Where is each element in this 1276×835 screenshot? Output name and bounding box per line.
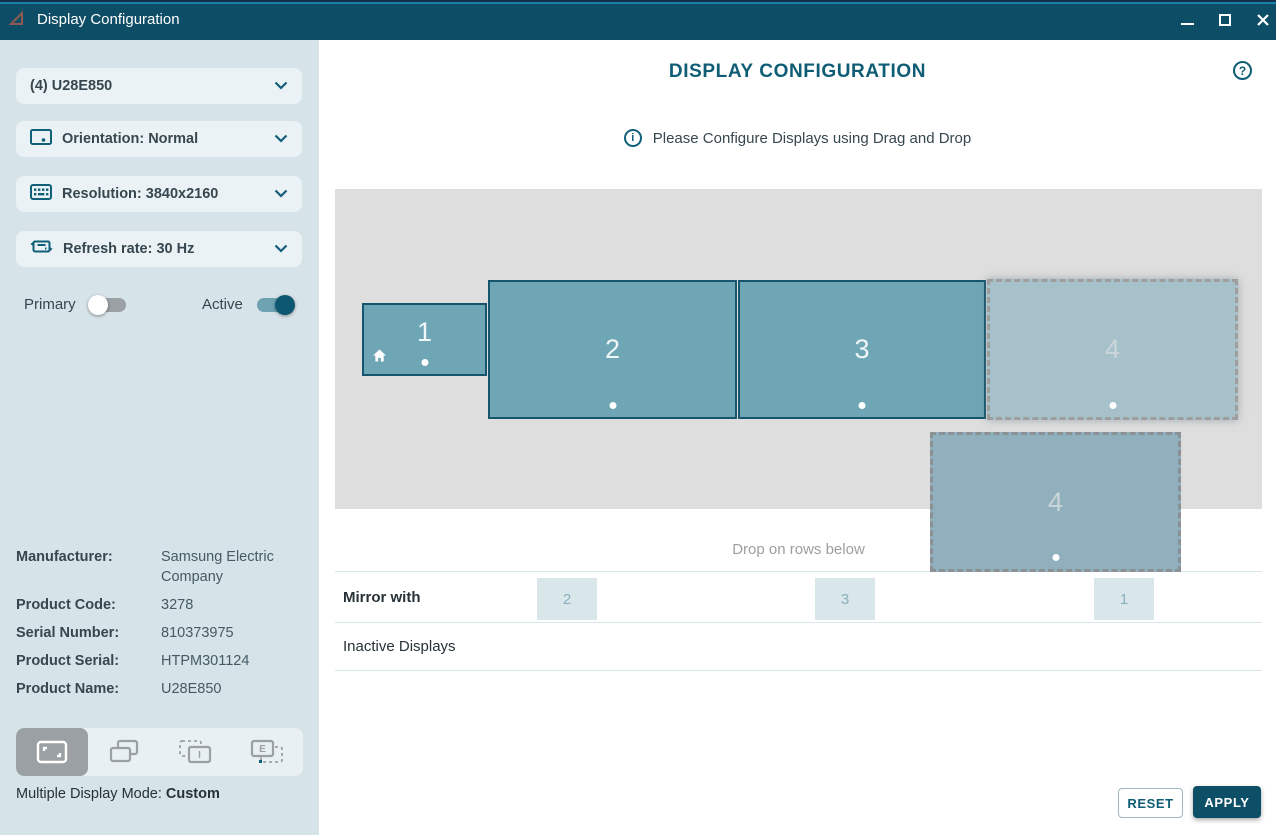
reset-button[interactable]: RESET [1118, 788, 1183, 818]
page-title: DISPLAY CONFIGURATION [319, 61, 1276, 83]
display-4-dragging[interactable]: 4 [930, 432, 1181, 572]
info-value: Samsung Electric Company [161, 547, 306, 587]
active-toggle-knob [275, 295, 295, 315]
display-mode-caption-value: Custom [166, 786, 220, 802]
resolution-dropdown[interactable]: Resolution: 3840x2160 [16, 176, 302, 212]
display-select-label: (4) U28E850 [30, 78, 112, 94]
resolution-label: Resolution: 3840x2160 [62, 186, 218, 202]
display-mode-toolbar: I E [16, 728, 303, 776]
display-2[interactable]: 2 [488, 280, 737, 419]
mirror-chip-1[interactable]: 1 [1094, 578, 1154, 620]
primary-toggle-knob [88, 295, 108, 315]
info-value: 3278 [161, 595, 193, 615]
inactive-displays-label: Inactive Displays [343, 638, 456, 655]
info-label: Product Name: [16, 679, 161, 699]
internal-only-mode-icon: I [178, 739, 212, 766]
orientation-dropdown[interactable]: Orientation: Normal [16, 121, 302, 157]
display-number: 1 [417, 317, 432, 348]
drag-handle-dot [421, 359, 428, 366]
display-number: 4 [1105, 334, 1120, 365]
window-title: Display Configuration [37, 11, 180, 28]
info-icon: i [624, 129, 642, 147]
display-number: 4 [1048, 487, 1063, 518]
titlebar: Display Configuration [0, 0, 1276, 40]
mode-external-only-button[interactable]: E [231, 728, 303, 776]
info-row-manufacturer: Manufacturer: Samsung Electric Company [16, 547, 306, 587]
drag-handle-dot [609, 402, 616, 409]
chevron-down-icon [274, 240, 288, 258]
display-number: 3 [854, 334, 869, 365]
primary-label: Primary [24, 296, 76, 313]
display-select-dropdown[interactable]: (4) U28E850 [16, 68, 302, 104]
mode-internal-only-button[interactable]: I [160, 728, 232, 776]
minimize-icon [1181, 23, 1194, 25]
home-icon [372, 349, 387, 367]
close-button[interactable] [1248, 0, 1276, 40]
titlebar-accent-stripe [0, 2, 1276, 4]
close-icon [1256, 13, 1270, 27]
info-row-product-name: Product Name: U28E850 [16, 679, 306, 699]
svg-text:I: I [198, 750, 201, 761]
custom-mode-icon [36, 740, 68, 764]
display-number: 2 [605, 334, 620, 365]
info-row-product-code: Product Code: 3278 [16, 595, 306, 615]
svg-text:E: E [259, 744, 266, 755]
maximize-icon [1219, 14, 1231, 26]
chevron-down-icon [274, 185, 288, 203]
info-label: Manufacturer: [16, 547, 161, 587]
drag-handle-dot [1109, 402, 1116, 409]
drag-handle-dot [859, 402, 866, 409]
info-value: U28E850 [161, 679, 221, 699]
active-toggle[interactable] [257, 298, 293, 312]
display-4-placeholder[interactable]: 4 [987, 279, 1238, 420]
maximize-button[interactable] [1210, 0, 1240, 40]
refresh-rate-icon [30, 238, 53, 260]
primary-toggle[interactable] [90, 298, 126, 312]
mirror-chip-3[interactable]: 3 [815, 578, 875, 620]
display-mode-caption-label: Multiple Display Mode: [16, 786, 166, 802]
mode-clone-button[interactable] [88, 728, 160, 776]
info-banner: i Please Configure Displays using Drag a… [319, 129, 1276, 147]
active-label: Active [202, 296, 243, 313]
display-1[interactable]: 1 [362, 303, 487, 376]
external-only-mode-icon: E [250, 739, 284, 766]
chevron-down-icon [274, 77, 288, 95]
minimize-button[interactable] [1172, 0, 1202, 40]
help-icon: ? [1239, 64, 1246, 78]
resolution-icon [30, 184, 52, 205]
drag-handle-dot [1052, 554, 1059, 561]
sidebar: (4) U28E850 Orientation: Normal Resoluti… [0, 40, 319, 835]
info-value: 810373975 [161, 623, 234, 643]
info-label: Serial Number: [16, 623, 161, 643]
app-logo-icon [8, 10, 26, 32]
info-label: Product Code: [16, 595, 161, 615]
info-row-serial-number: Serial Number: 810373975 [16, 623, 306, 643]
display-mode-caption: Multiple Display Mode: Custom [16, 786, 220, 802]
mode-custom-button[interactable] [16, 728, 88, 776]
clone-mode-icon [109, 739, 139, 765]
main-panel: DISPLAY CONFIGURATION ? i Please Configu… [319, 40, 1276, 835]
row-divider [335, 622, 1262, 623]
info-label: Product Serial: [16, 651, 161, 671]
apply-button[interactable]: APPLY [1193, 786, 1261, 818]
refresh-rate-dropdown[interactable]: Refresh rate: 30 Hz [16, 231, 302, 267]
info-message: Please Configure Displays using Drag and… [653, 130, 972, 147]
mirror-chip-2[interactable]: 2 [537, 578, 597, 620]
mirror-with-label: Mirror with [343, 589, 421, 606]
row-divider [335, 670, 1262, 671]
info-row-product-serial: Product Serial: HTPM301124 [16, 651, 306, 671]
chevron-down-icon [274, 130, 288, 148]
monitor-info-panel: Manufacturer: Samsung Electric Company P… [16, 547, 306, 707]
info-value: HTPM301124 [161, 651, 249, 671]
refresh-rate-label: Refresh rate: 30 Hz [63, 241, 194, 257]
display-3[interactable]: 3 [738, 280, 986, 419]
help-button[interactable]: ? [1233, 61, 1252, 80]
orientation-icon [30, 129, 52, 150]
orientation-label: Orientation: Normal [62, 131, 198, 147]
